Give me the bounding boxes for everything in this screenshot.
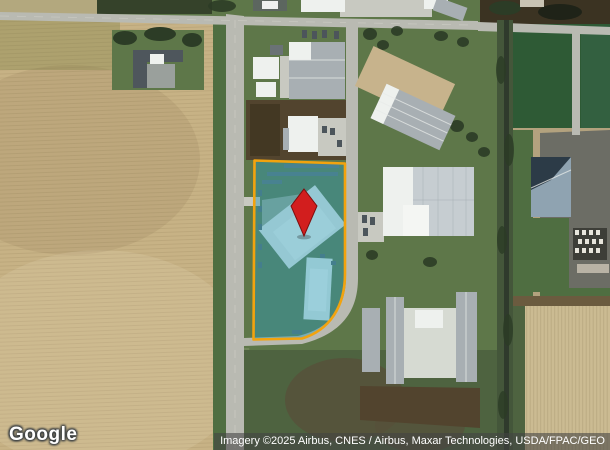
u-shaped-complex bbox=[360, 292, 480, 428]
google-logo[interactable]: Google bbox=[9, 424, 77, 446]
map-viewport[interactable]: Google Imagery ©2025 Airbus, CNES / Airb… bbox=[0, 0, 610, 450]
attribution-bar: Imagery ©2025 Airbus, CNES / Airbus, Max… bbox=[214, 433, 610, 450]
parcel-highlight[interactable] bbox=[254, 161, 346, 340]
parcel-fill-overlay bbox=[254, 161, 346, 340]
attribution-text: Imagery ©2025 Airbus, CNES / Airbus, Max… bbox=[220, 435, 605, 447]
farmhouse-site bbox=[112, 27, 204, 90]
satellite-map-canvas[interactable] bbox=[0, 0, 610, 450]
truck-rows bbox=[573, 228, 607, 260]
railroad-corridor bbox=[496, 20, 514, 450]
